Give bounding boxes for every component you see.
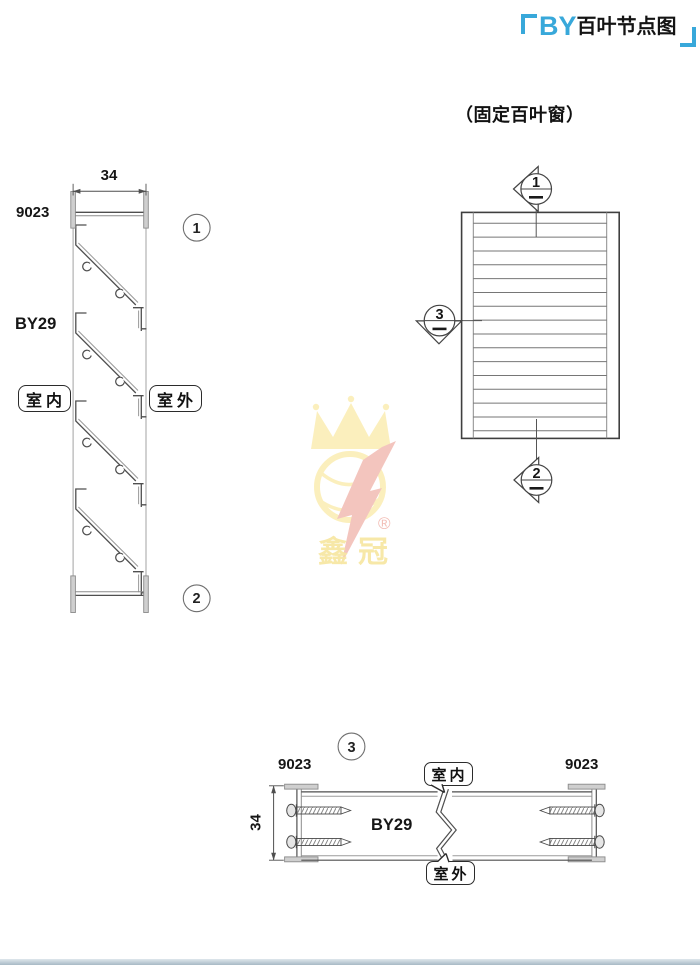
louver-blades: [473, 223, 606, 430]
title-bracket-right-icon: [680, 27, 696, 47]
profile-code-label: 9023: [16, 205, 49, 220]
title-prefix: BY: [539, 13, 577, 40]
plan-detail-drawing: [269, 733, 605, 864]
profile-code-right-label: 9023: [565, 757, 598, 772]
outdoor-label-plan: 室外: [426, 861, 475, 885]
screw: [540, 836, 604, 848]
bottom-edge-strip: [0, 959, 700, 965]
series-code-label: BY29: [15, 316, 56, 333]
drawing-subtitle: （固定百叶窗）: [455, 101, 585, 127]
screw: [540, 804, 604, 816]
callout-1-number: 1: [188, 221, 205, 237]
title-bracket-left-icon: [521, 14, 537, 34]
dimension-34-height: [269, 785, 284, 860]
title-text: 百叶节点图: [577, 17, 677, 37]
registered-mark: ®: [378, 514, 391, 534]
marker-3-number: 3: [432, 307, 448, 323]
dimension-34-width: [73, 184, 146, 196]
screw: [287, 836, 351, 848]
indoor-label-plan: 室内: [424, 762, 473, 786]
marker-2-number: 2: [529, 466, 545, 482]
page-title: BY 百叶节点图: [521, 11, 696, 47]
outdoor-label: 室外: [149, 385, 202, 412]
callout-2-number: 2: [188, 591, 205, 607]
dim-width-label: 34: [94, 168, 124, 183]
crown-shape: [311, 403, 391, 449]
break-line: [436, 789, 451, 864]
dim-height-label: 34: [249, 806, 264, 840]
drawing-canvas: [0, 0, 700, 965]
globe-shape: [317, 454, 383, 520]
section-marker-2: [514, 419, 552, 503]
screw: [287, 804, 351, 816]
elevation-drawing: [416, 167, 619, 503]
section-marker-3: [416, 305, 482, 343]
callout-3-number: 3: [343, 740, 360, 756]
series-code-plan-label: BY29: [371, 817, 412, 834]
indoor-label: 室内: [18, 385, 71, 412]
profile-code-left-label: 9023: [278, 757, 311, 772]
marker-1-number: 1: [528, 175, 544, 191]
overlay-tails: [0, 0, 700, 965]
